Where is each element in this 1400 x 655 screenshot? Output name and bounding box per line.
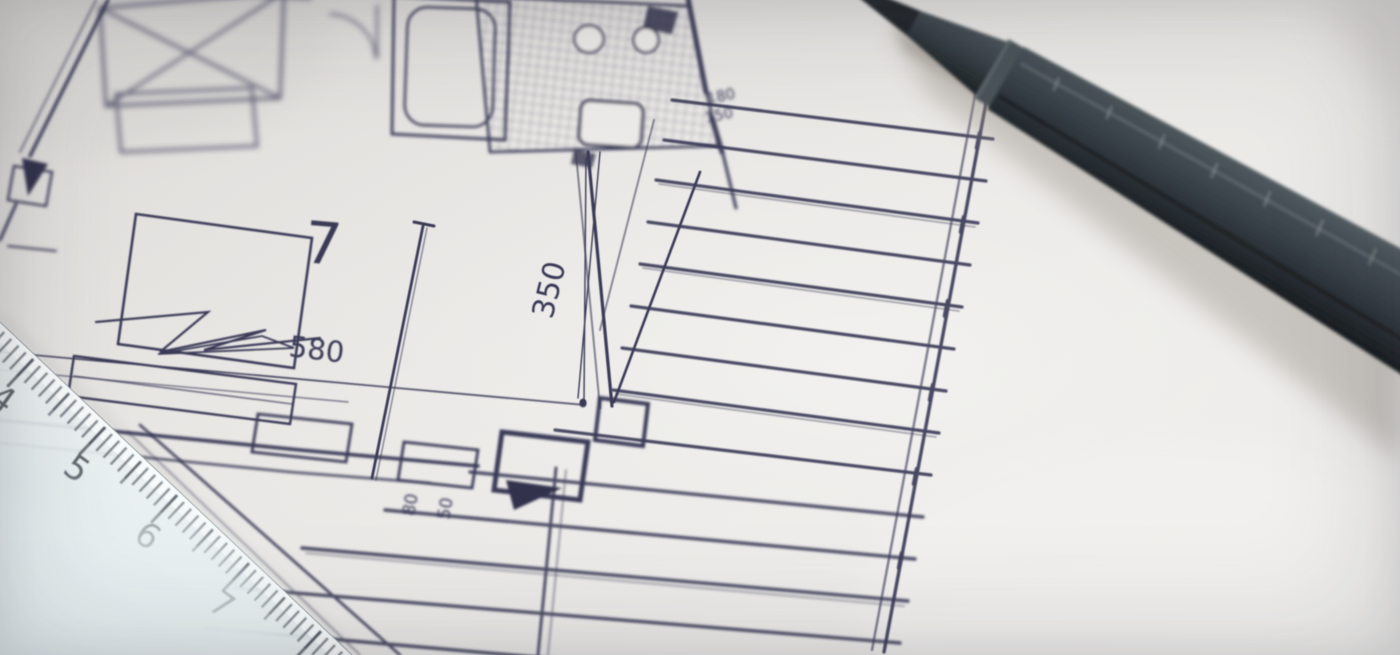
photo-floorplan-scene: 7 580 180 150: [0, 0, 1400, 655]
dimension-label-50: 50: [434, 496, 457, 521]
sink-basin: [575, 26, 604, 53]
dimension-label-80: 80: [399, 492, 422, 517]
room-number-label: 7: [302, 208, 345, 279]
scene-canvas: 7 580 180 150: [0, 0, 1400, 655]
dimension-label-580: 580: [287, 329, 346, 369]
shower-tray: [579, 100, 644, 148]
toilet-bowl: [634, 28, 659, 53]
